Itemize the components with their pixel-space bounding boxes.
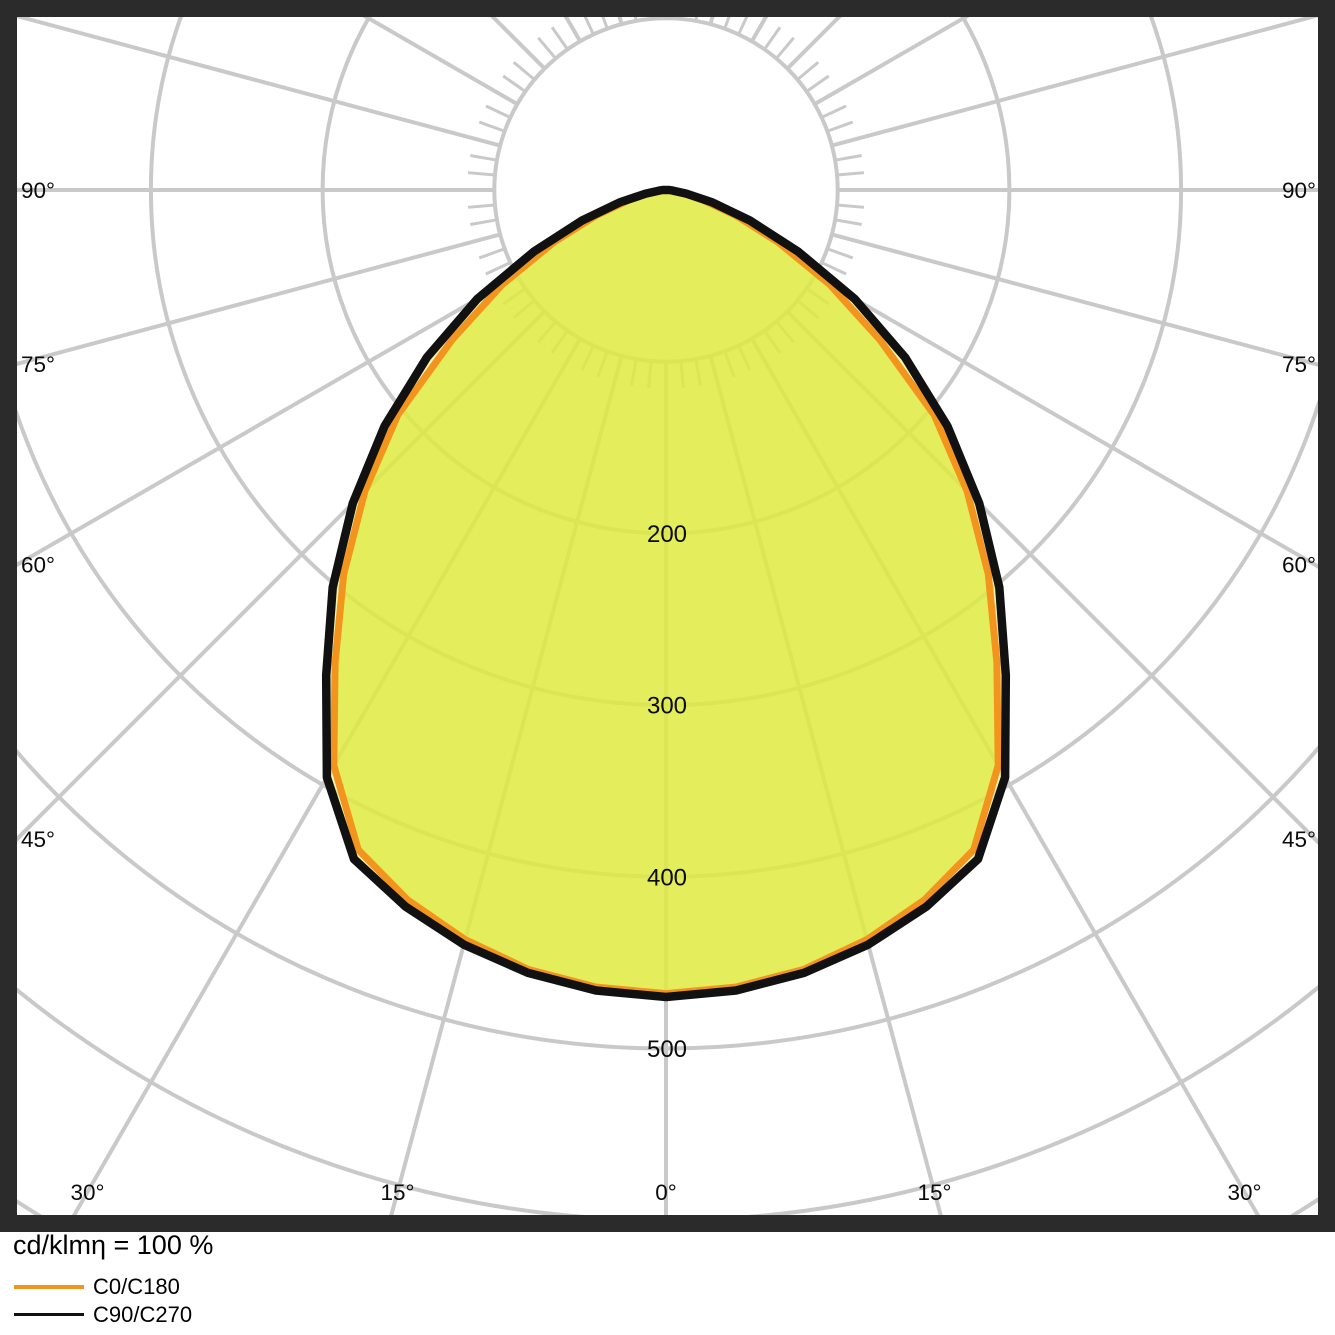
angle-label-left: 45° [21, 827, 55, 852]
angle-label-right: 75° [1282, 352, 1316, 377]
angle-label-right: 45° [1282, 827, 1316, 852]
legend-item-label: C0/C180 [93, 1274, 180, 1300]
ring-value-label: 200 [647, 521, 687, 548]
angle-label-bottom: 30° [1227, 1180, 1261, 1205]
photometric-diagram-page: 20030040050090°90°75°75°60°60°45°45°30°1… [0, 0, 1335, 1335]
angle-label-left: 90° [21, 178, 55, 203]
angle-label-right: 90° [1282, 178, 1316, 203]
angle-label-left: 75° [21, 352, 55, 377]
angle-label-bottom: 30° [70, 1180, 104, 1205]
angle-label-bottom: 0° [655, 1180, 677, 1205]
legend-item-label: C90/C270 [93, 1302, 192, 1328]
angle-label-bottom: 15° [380, 1180, 414, 1205]
legend-swatch-c90-c270 [14, 1313, 84, 1316]
legend-title: cd/klmη = 100 % [13, 1228, 213, 1262]
legend: cd/klmη = 100 % C0/C180 C90/C270 [0, 1232, 1335, 1335]
photometric-polar-chart: 20030040050090°90°75°75°60°60°45°45°30°1… [0, 0, 1335, 1335]
ring-value-label: 300 [647, 693, 687, 720]
ring-value-label: 400 [647, 864, 687, 891]
legend-swatch-c0-c180 [14, 1285, 84, 1289]
angle-label-bottom: 15° [917, 1180, 951, 1205]
ring-value-label: 500 [647, 1036, 687, 1063]
angle-label-right: 60° [1282, 553, 1316, 578]
angle-label-left: 60° [21, 553, 55, 578]
